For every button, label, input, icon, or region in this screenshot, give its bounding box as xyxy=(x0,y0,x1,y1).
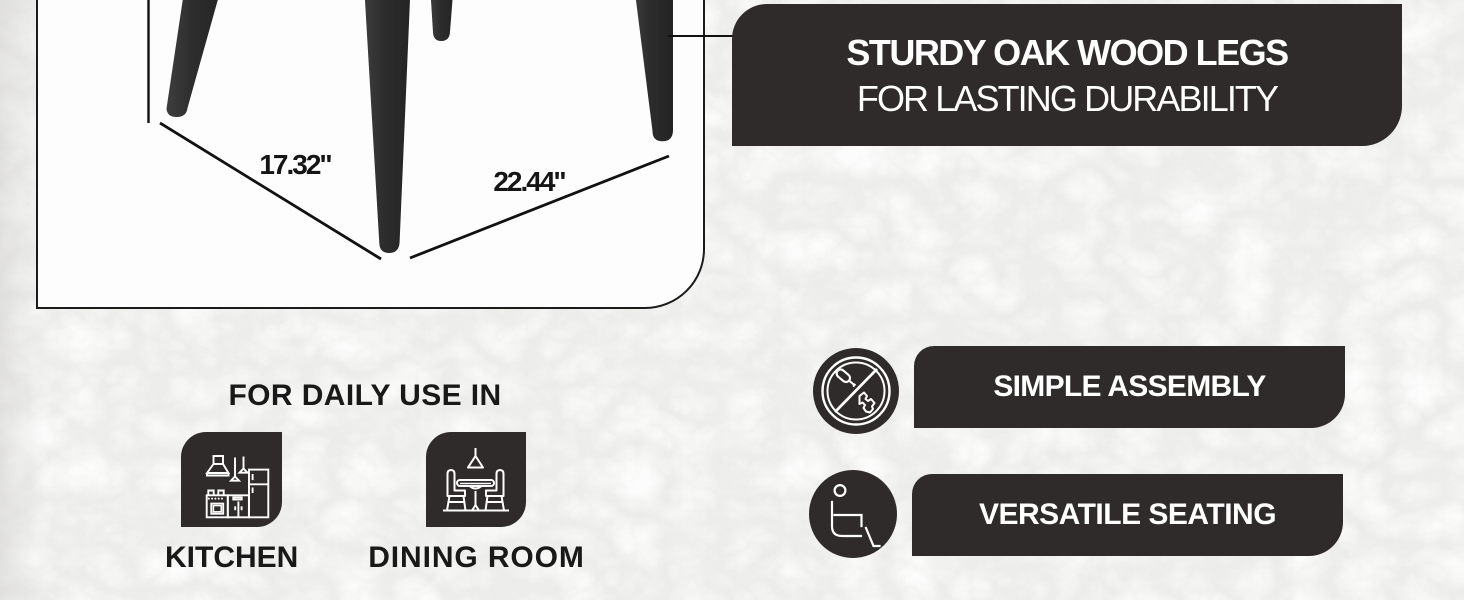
svg-text:17.32": 17.32" xyxy=(259,149,331,180)
svg-text:22.44": 22.44" xyxy=(493,166,565,197)
